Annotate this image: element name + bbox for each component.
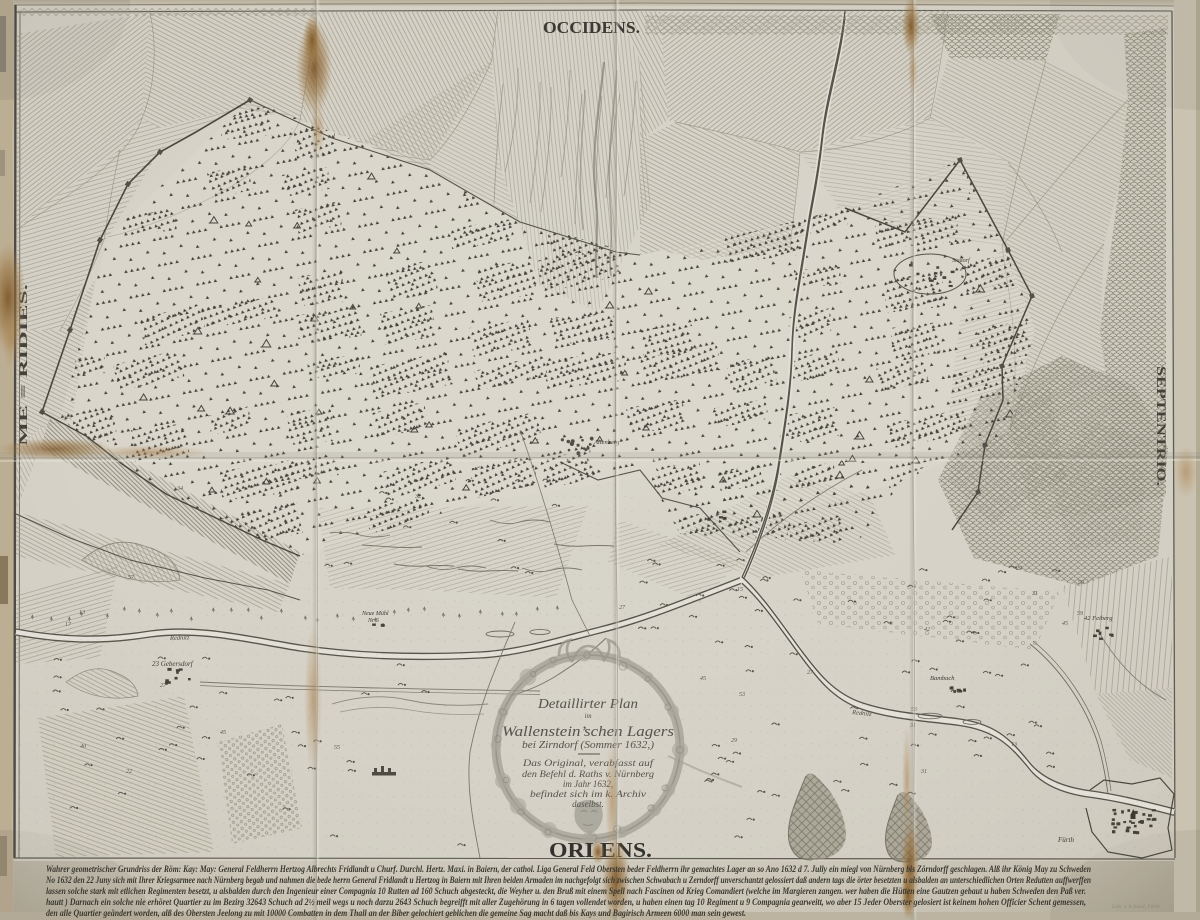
svg-text:bei Zirndorf (Sommer 1632,): bei Zirndorf (Sommer 1632,) <box>522 739 654 751</box>
svg-text:59: 59 <box>1078 580 1084 586</box>
svg-text:27: 27 <box>619 605 626 611</box>
svg-text:Wahrer geometrischer Grundriss: Wahrer geometrischer Grundriss der Röm: … <box>46 864 1091 874</box>
svg-text:59: 59 <box>1077 611 1083 617</box>
svg-text:SEPTENTRIO.: SEPTENTRIO. <box>1154 366 1168 486</box>
svg-text:hautt ) Darnach ein solche nie: hautt ) Darnach ein solche nie erhöret Q… <box>46 897 1086 907</box>
svg-text:Das Original, verabfasst auf: Das Original, verabfasst auf <box>522 758 655 769</box>
svg-text:45: 45 <box>220 729 226 736</box>
svg-text:den alle Quartier geändert wor: den alle Quartier geändert worden, alß d… <box>46 908 746 918</box>
svg-text:17: 17 <box>65 622 72 628</box>
svg-text:OCCIDENS.: OCCIDENS. <box>543 18 640 37</box>
svg-text:42: 42 <box>924 626 930 633</box>
svg-text:daselbst.: daselbst. <box>572 799 604 809</box>
svg-text:27: 27 <box>807 670 814 676</box>
svg-text:im: im <box>585 712 592 720</box>
svg-text:45: 45 <box>700 675 706 682</box>
svg-text:31: 31 <box>1031 591 1038 597</box>
svg-text:29: 29 <box>731 738 737 744</box>
svg-text:No 1632 den 22 Juny sich mit I: No 1632 den 22 Juny sich mit Ihrer Krieg… <box>45 875 1091 885</box>
svg-text:13: 13 <box>79 610 85 616</box>
svg-text:Stadorf: Stadorf <box>952 257 971 264</box>
svg-text:27: 27 <box>160 683 167 689</box>
svg-text:den Befehl d. Raths v. Nürnber: den Befehl d. Raths v. Nürnberg <box>522 769 655 779</box>
svg-text:32: 32 <box>414 494 421 500</box>
svg-text:Rednitz: Rednitz <box>169 634 190 642</box>
svg-text:42 Feiberg: 42 Feiberg <box>1084 615 1113 622</box>
svg-text:34: 34 <box>176 485 183 492</box>
svg-text:45: 45 <box>1062 620 1068 627</box>
svg-text:57: 57 <box>128 575 135 581</box>
svg-text:13: 13 <box>1011 742 1017 748</box>
svg-text:15: 15 <box>737 587 743 593</box>
svg-text:55: 55 <box>334 745 340 751</box>
svg-text:31: 31 <box>920 769 927 775</box>
svg-text:Detaillirter Plan: Detaillirter Plan <box>537 696 638 711</box>
svg-text:Wallenstein’schen Lagers: Wallenstein’schen Lagers <box>502 724 674 740</box>
svg-text:lassen solche stark mit etlich: lassen solche stark mit etlichen Regimen… <box>46 886 1086 896</box>
svg-text:22: 22 <box>126 769 132 775</box>
svg-text:53: 53 <box>739 692 745 698</box>
svg-text:40: 40 <box>80 743 86 750</box>
svg-text:Lith. v. Schmid, Fürth.: Lith. v. Schmid, Fürth. <box>1111 904 1161 910</box>
svg-text:29: 29 <box>1016 566 1022 572</box>
svg-text:befindet sich im k. Archiv: befindet sich im k. Archiv <box>530 789 646 799</box>
